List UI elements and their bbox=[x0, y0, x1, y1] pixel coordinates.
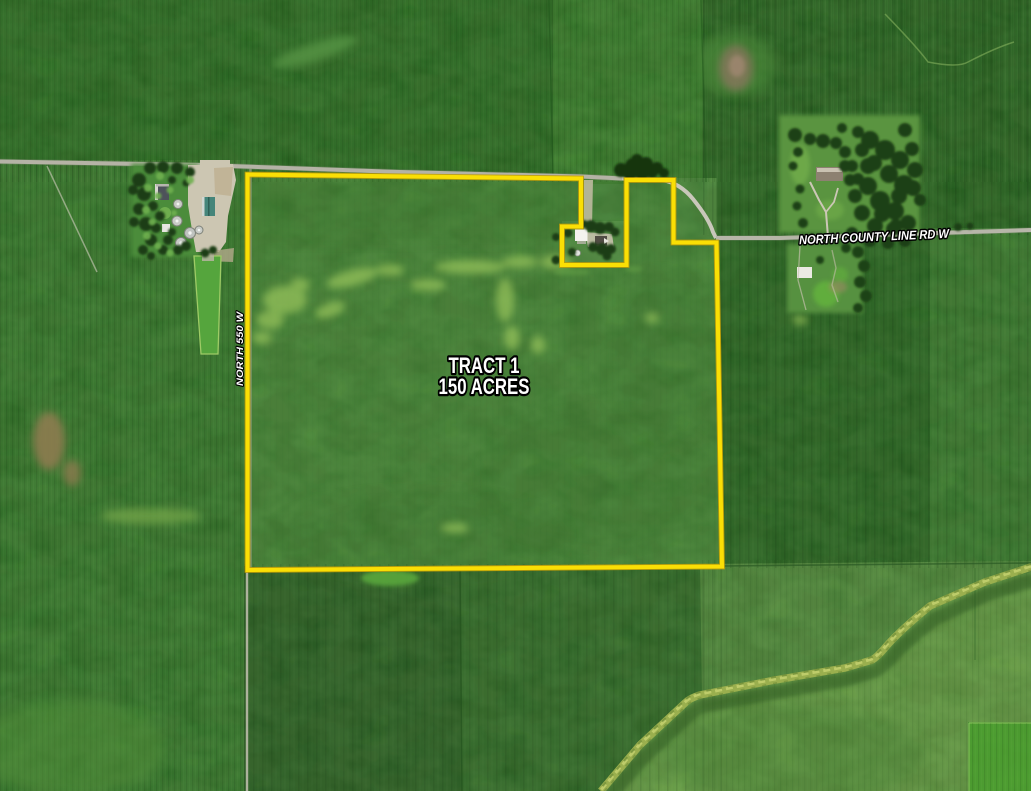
svg-text:NORTH 550 W: NORTH 550 W bbox=[235, 310, 245, 386]
svg-text:150 ACRES: 150 ACRES bbox=[439, 374, 530, 399]
